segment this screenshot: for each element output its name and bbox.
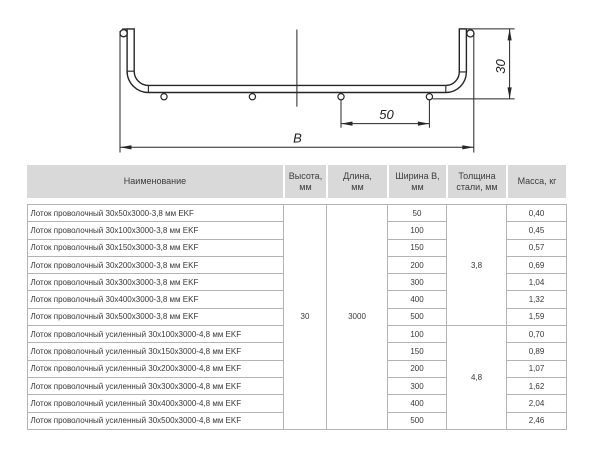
- svg-text:50: 50: [379, 107, 394, 122]
- svg-text:30: 30: [493, 59, 508, 74]
- svg-text:B: B: [293, 131, 302, 146]
